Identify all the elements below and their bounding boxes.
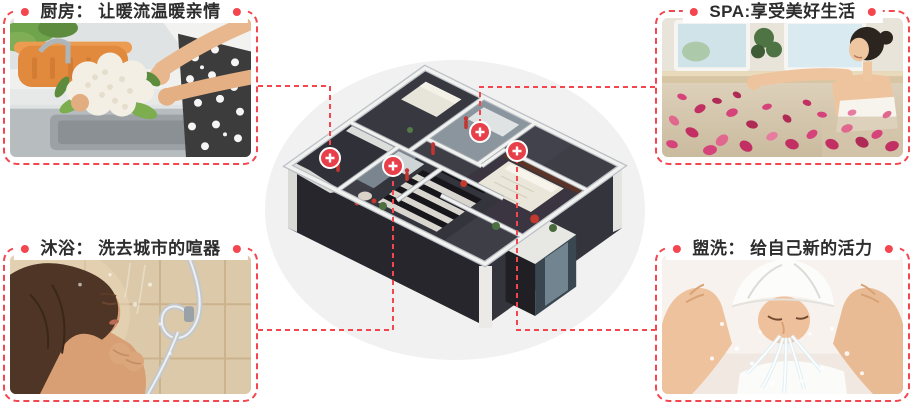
callout-shower-title: 沐浴： 洗去城市的喧器	[13, 238, 247, 260]
spa-photo-illustration	[662, 18, 903, 157]
callout-wash-label: 盥洗： 给自己新的活力	[692, 238, 872, 260]
shower-photo-illustration	[10, 255, 251, 394]
bullet-dot-icon	[689, 8, 697, 16]
spa-photo	[662, 18, 903, 157]
face	[758, 296, 810, 343]
callout-wash: 盥洗： 给自己新的活力	[655, 247, 910, 402]
hotspot-spa[interactable]	[470, 122, 490, 142]
bullet-dot-icon	[885, 245, 893, 253]
callout-kitchen-label: 厨房： 让暖流温暖亲情	[40, 1, 220, 23]
callout-kitchen-title: 厨房： 让暖流温暖亲情	[13, 1, 247, 23]
bullet-dot-icon	[20, 245, 28, 253]
bullet-dot-icon	[868, 8, 876, 16]
wash-photo-illustration	[662, 255, 903, 394]
hotspot-kitchen[interactable]	[320, 148, 340, 168]
bullet-dot-icon	[233, 8, 241, 16]
bullet-dot-icon	[20, 8, 28, 16]
callout-shower-label: 沐浴： 洗去城市的喧器	[40, 238, 220, 260]
kitchen-photo	[10, 18, 251, 157]
bullet-dot-icon	[233, 245, 241, 253]
wash-photo	[662, 255, 903, 394]
callout-shower: 沐浴： 洗去城市的喧器	[3, 247, 258, 402]
callout-spa-title: SPA:享受美好生活	[682, 1, 882, 23]
callout-spa: SPA:享受美好生活	[655, 10, 910, 165]
hotspot-wash[interactable]	[507, 141, 527, 161]
callout-wash-title: 盥洗： 给自己新的活力	[665, 238, 899, 260]
hotspot-shower[interactable]	[383, 156, 403, 176]
bullet-dot-icon	[672, 245, 680, 253]
infographic-canvas: 厨房： 让暖流温暖亲情	[0, 0, 913, 408]
shower-photo	[10, 255, 251, 394]
callout-kitchen: 厨房： 让暖流温暖亲情	[3, 10, 258, 165]
callout-spa-label: SPA:享受美好生活	[709, 1, 855, 23]
kitchen-photo-illustration	[10, 18, 251, 157]
